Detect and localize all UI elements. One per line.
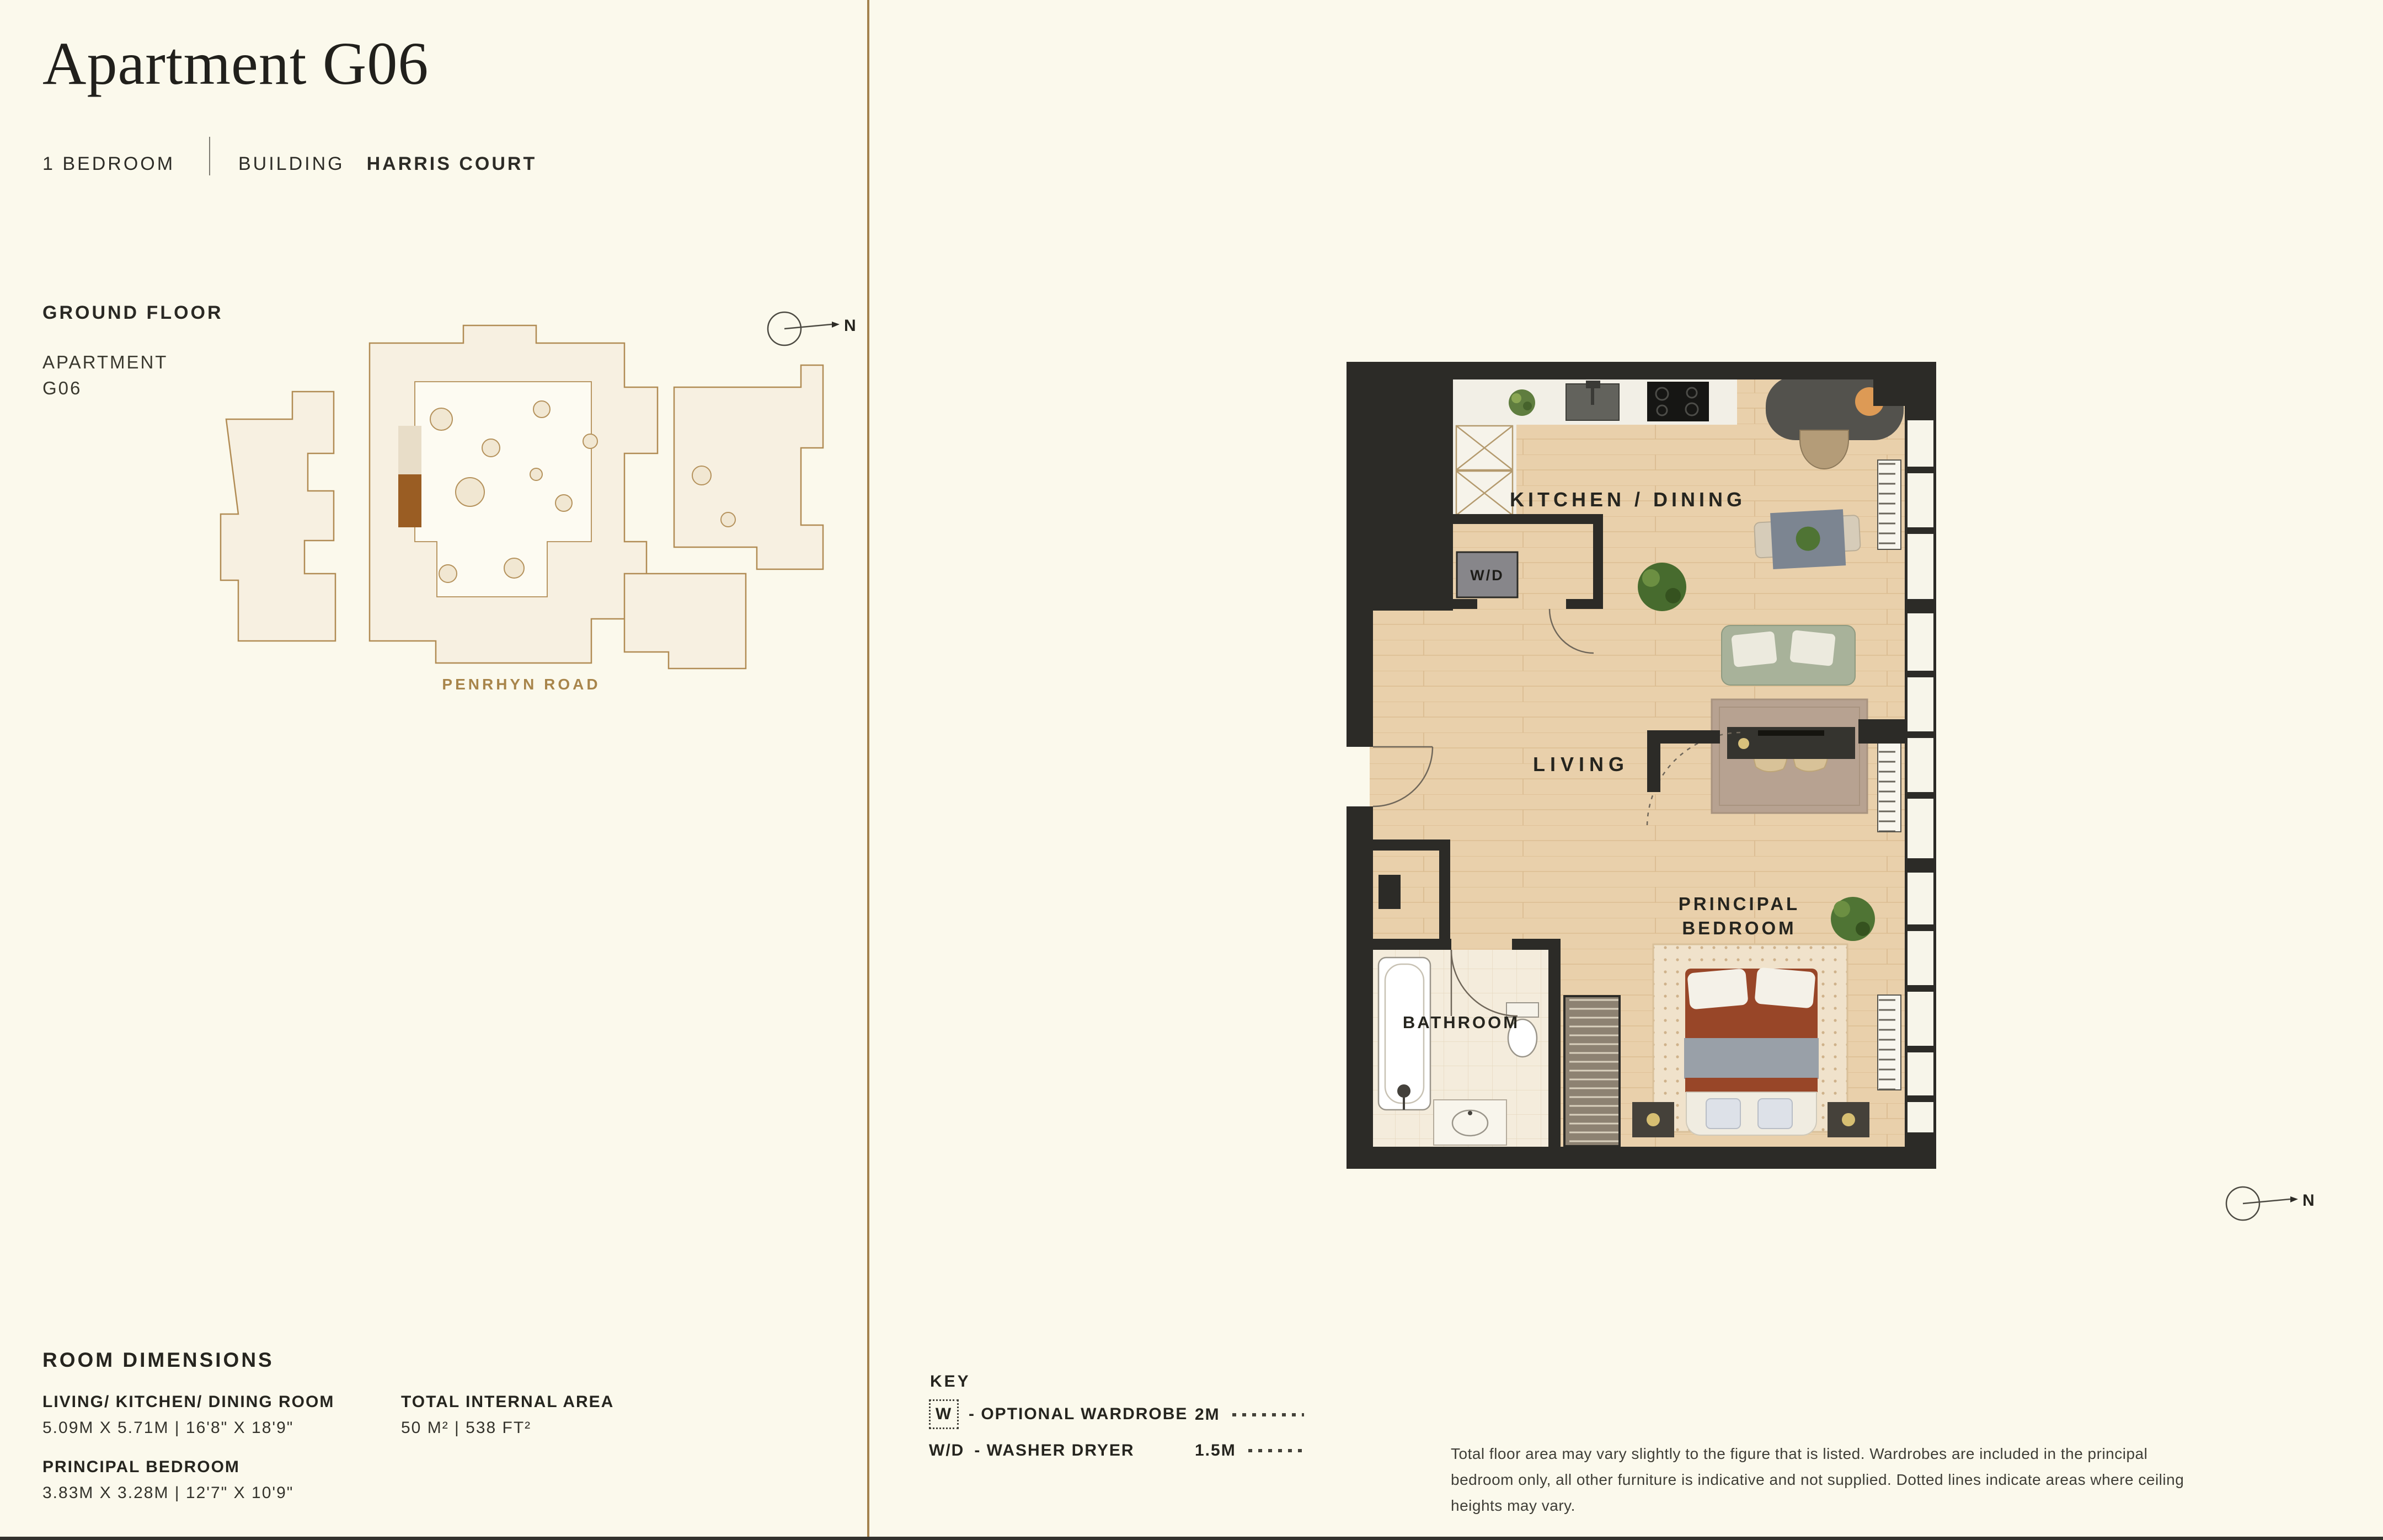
dashed-line-15m (1248, 1449, 1303, 1452)
optional-wardrobe (1564, 996, 1620, 1146)
label-principal-bedroom-1: PRINCIPAL (1679, 894, 1800, 914)
window-wall (1905, 406, 1936, 1147)
total-area-value: 50 M² | 538 FT² (401, 1419, 531, 1437)
dashed-line-2m (1232, 1413, 1304, 1416)
north-arrowhead-icon (2290, 1196, 2298, 1202)
key-row-wardrobe: W - OPTIONAL WARDROBE (929, 1400, 1188, 1429)
apartment-number: G06 (42, 378, 82, 399)
kitchen-hob (1647, 382, 1709, 421)
bed (1684, 967, 1819, 1135)
console-lamp (1738, 738, 1749, 749)
lamp-right (1842, 1113, 1855, 1126)
site-strip (398, 426, 421, 474)
site-plan: PENRHYN ROAD (204, 309, 838, 706)
floor-plan: KITCHEN / DINING LIVING PRINCIPAL BEDROO… (1347, 362, 1936, 1169)
washer-symbol: W/D (929, 1441, 964, 1460)
pillow-left (1687, 969, 1748, 1010)
radiator-bedroom (1878, 995, 1901, 1090)
ceiling-height-2m: 2M (1195, 1404, 1304, 1426)
site-building-southeast (624, 574, 746, 669)
north-label: N (844, 317, 856, 335)
vanity (1434, 1100, 1506, 1145)
page-title: Apartment G06 (42, 29, 429, 99)
ceiling-height-15m: 1.5M (1195, 1440, 1303, 1462)
pillow-right (1754, 967, 1815, 1009)
kitchen-faucet (1586, 381, 1600, 388)
dim-value-2: 3.83M X 3.28M | 12'7" X 10'9" (42, 1484, 293, 1502)
shower-head (1397, 1084, 1410, 1098)
room-dimensions-heading: ROOM DIMENSIONS (42, 1349, 274, 1372)
subtitle-divider (209, 137, 210, 175)
label-kitchen-dining: KITCHEN / DINING (1510, 488, 1746, 511)
panel-divider (867, 0, 869, 1540)
wall-core (1347, 362, 1453, 611)
floorplan-page: Apartment G06 1 BEDROOM BUILDING HARRIS … (0, 0, 2383, 1540)
tv (1758, 730, 1824, 736)
north-label: N (2302, 1191, 2315, 1210)
ceiling-2m-label: 2M (1195, 1405, 1220, 1424)
floor-label: GROUND FLOOR (42, 302, 223, 324)
label-washer-dryer: W/D (1470, 567, 1504, 584)
washer-description: - WASHER DRYER (974, 1441, 1134, 1460)
dim-value-1: 5.09M X 5.71M | 16'8" X 18'9" (42, 1419, 293, 1437)
plan-north-arrow: N (2218, 1176, 2322, 1228)
north-line (2243, 1199, 2290, 1204)
road-label: PENRHYN ROAD (442, 676, 600, 693)
building-label: BUILDING (238, 153, 345, 175)
radiator-kitchen (1878, 460, 1901, 549)
lamp-left (1647, 1113, 1660, 1126)
radiator-living (1878, 741, 1901, 832)
key-row-washer: W/D - WASHER DRYER (929, 1439, 1135, 1463)
dim-room-1: LIVING/ KITCHEN/ DINING ROOM (42, 1393, 334, 1411)
key-heading: KEY (930, 1372, 971, 1391)
building-name: HARRIS COURT (367, 153, 537, 175)
bedroom-count: 1 BEDROOM (42, 153, 175, 175)
site-highlight-apartment-g06 (398, 474, 421, 527)
sofa-cushion-right (1789, 630, 1836, 666)
foot-cushion-right (1758, 1099, 1792, 1129)
dim-room-2: PRINCIPAL BEDROOM (42, 1458, 240, 1477)
label-living: LIVING (1533, 753, 1629, 776)
site-building-west (221, 392, 335, 641)
disclaimer-text: Total floor area may vary slightly to th… (1451, 1441, 2193, 1518)
ceiling-15m-label: 1.5M (1195, 1441, 1236, 1460)
sofa-cushion-left (1731, 631, 1777, 667)
wardrobe-description: - OPTIONAL WARDROBE (969, 1405, 1188, 1424)
living-furniture (1712, 625, 1867, 813)
label-bathroom: BATHROOM (1403, 1013, 1520, 1032)
floor-plant (1638, 563, 1686, 611)
apartment-label: APARTMENT (42, 352, 168, 373)
counter-plant (1509, 389, 1535, 416)
wardrobe-symbol: W (929, 1399, 959, 1429)
label-principal-bedroom-2: BEDROOM (1682, 918, 1796, 938)
foot-cushion-left (1706, 1099, 1740, 1129)
total-area-label: TOTAL INTERNAL AREA (401, 1393, 614, 1411)
